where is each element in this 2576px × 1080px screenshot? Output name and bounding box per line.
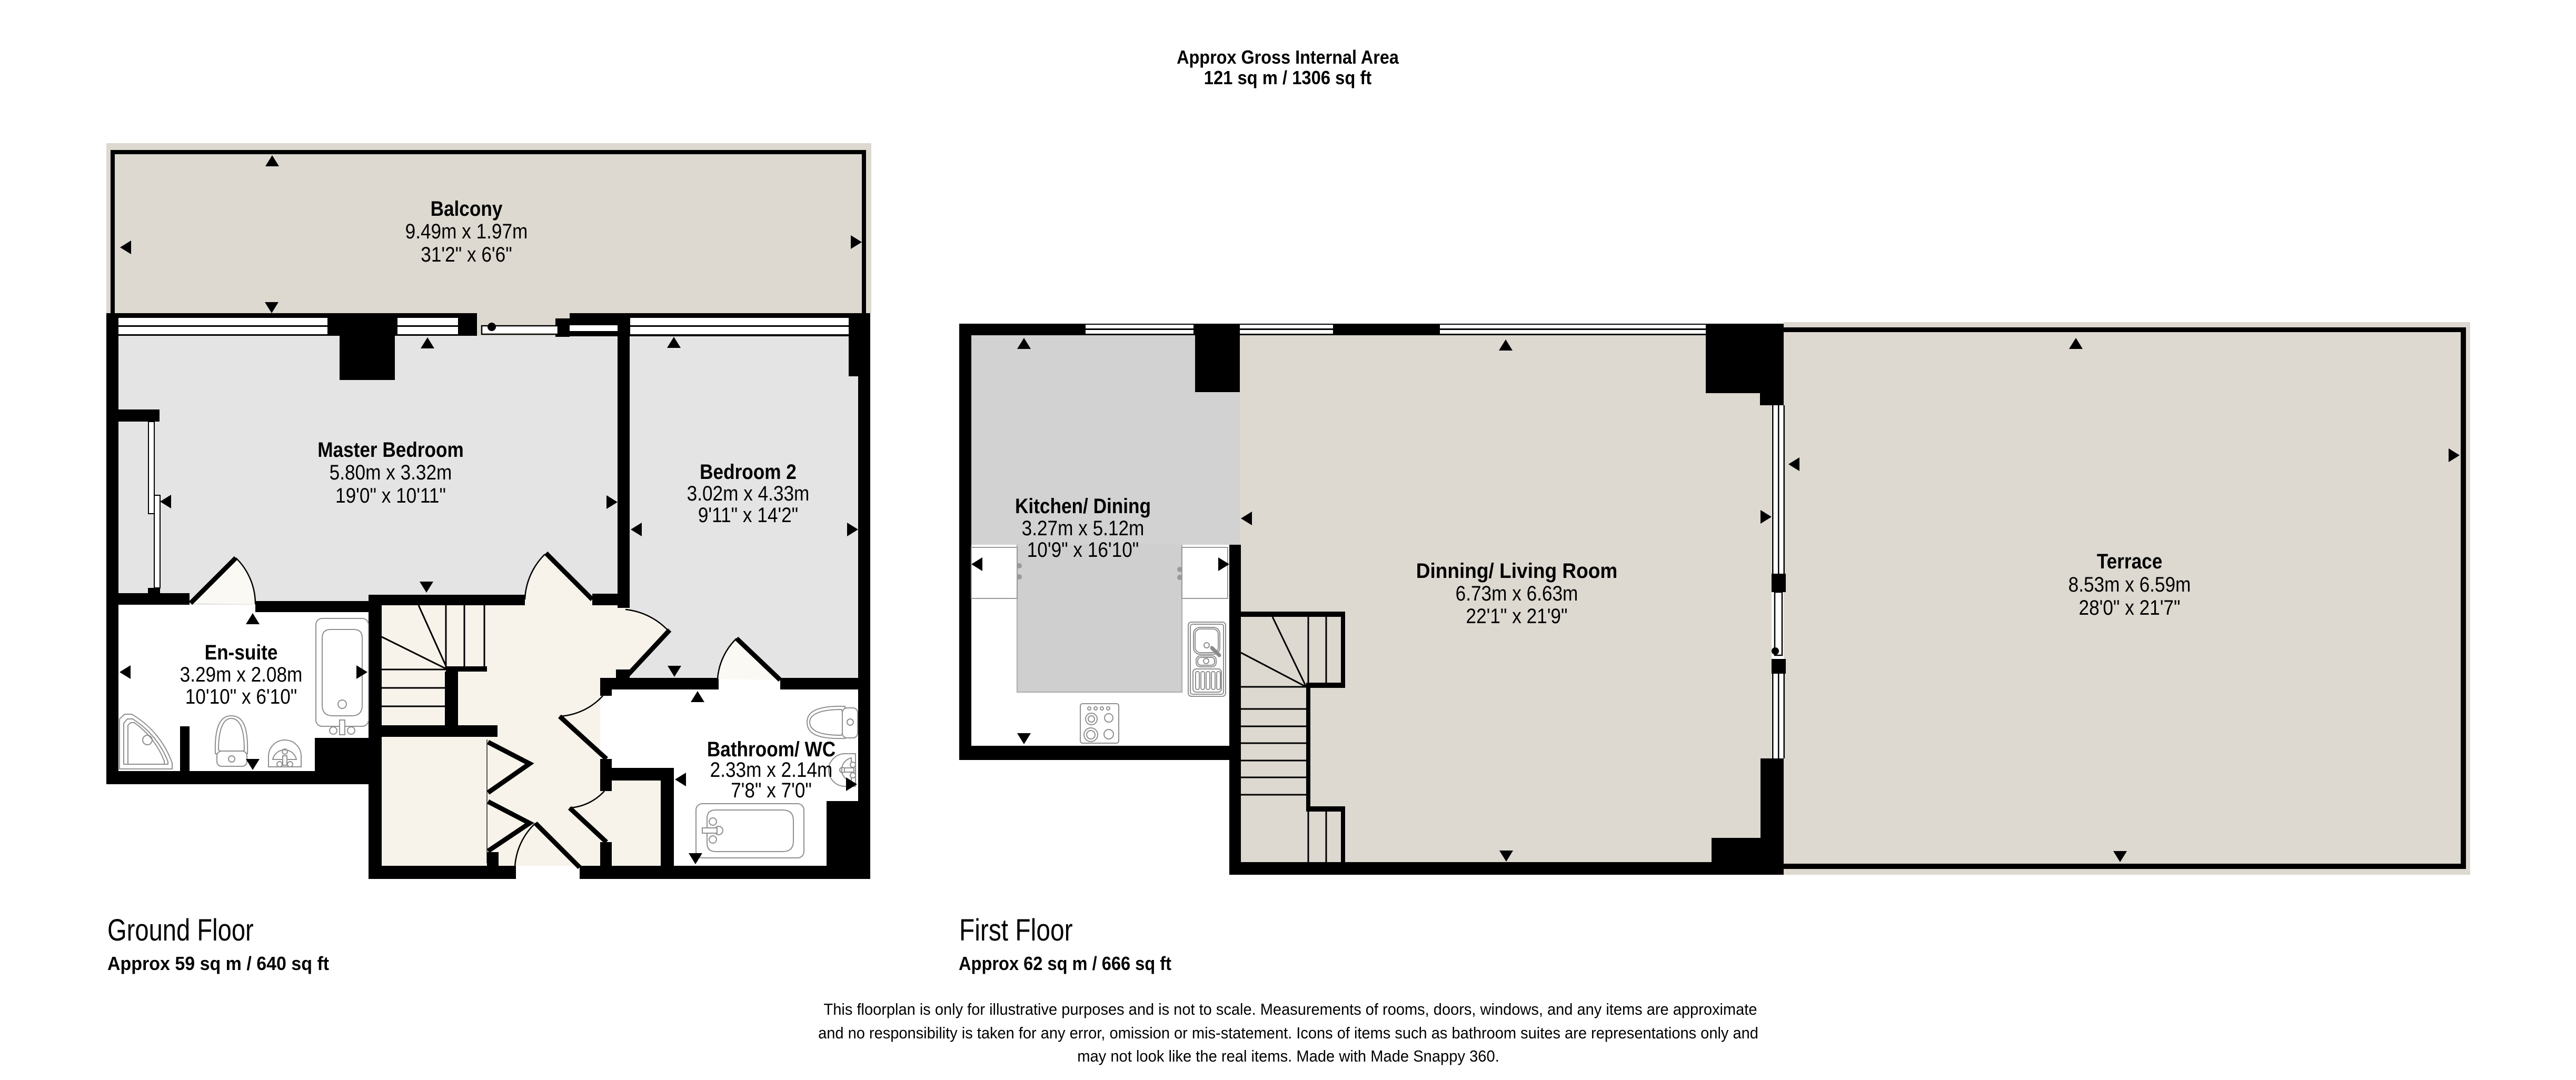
svg-text:Approx 62 sq m / 666 sq ft: Approx 62 sq m / 666 sq ft	[959, 954, 1171, 975]
svg-text:10'9" x 16'10": 10'9" x 16'10"	[1027, 538, 1139, 562]
svg-text:Dinning/ Living Room: Dinning/ Living Room	[1416, 559, 1618, 583]
svg-text:9'11" x 14'2": 9'11" x 14'2"	[698, 503, 798, 527]
svg-text:may not look like the real ite: may not look like the real items. Made w…	[1077, 1047, 1499, 1065]
svg-text:2.33m x 2.14m: 2.33m x 2.14m	[710, 758, 833, 782]
svg-text:3.29m x 2.08m: 3.29m x 2.08m	[180, 663, 303, 686]
svg-text:Approx Gross Internal Area: Approx Gross Internal Area	[1177, 47, 1399, 68]
svg-text:Approx 59 sq m / 640 sq ft: Approx 59 sq m / 640 sq ft	[107, 953, 329, 974]
svg-text:31'2" x 6'6": 31'2" x 6'6"	[421, 243, 512, 266]
svg-text:9.49m x 1.97m: 9.49m x 1.97m	[405, 219, 528, 243]
svg-text:Master Bedroom: Master Bedroom	[317, 438, 464, 462]
svg-text:7'8" x 7'0": 7'8" x 7'0"	[731, 778, 812, 802]
svg-text:6.73m x 6.63m: 6.73m x 6.63m	[1456, 582, 1578, 605]
svg-text:3.02m x 4.33m: 3.02m x 4.33m	[687, 482, 810, 505]
svg-text:Ground Floor: Ground Floor	[107, 913, 254, 947]
svg-text:28'0" x 21'7": 28'0" x 21'7"	[2079, 596, 2181, 619]
svg-text:Balcony: Balcony	[431, 197, 503, 221]
svg-text:This floorplan is only for ill: This floorplan is only for illustrative …	[824, 1001, 1757, 1018]
svg-text:8.53m x 6.59m: 8.53m x 6.59m	[2068, 573, 2191, 596]
svg-text:10'10" x 6'10": 10'10" x 6'10"	[185, 685, 297, 708]
svg-text:Bathroom/ WC: Bathroom/ WC	[707, 737, 836, 761]
svg-text:3.27m x 5.12m: 3.27m x 5.12m	[1022, 516, 1145, 540]
svg-text:22'1" x 21'9": 22'1" x 21'9"	[1466, 604, 1568, 628]
svg-text:19'0" x 10'11": 19'0" x 10'11"	[335, 484, 446, 507]
svg-text:First Floor: First Floor	[959, 914, 1073, 947]
svg-text:Kitchen/ Dining: Kitchen/ Dining	[1015, 494, 1151, 518]
svg-text:121 sq m / 1306 sq ft: 121 sq m / 1306 sq ft	[1204, 68, 1372, 89]
svg-text:5.80m x 3.32m: 5.80m x 3.32m	[330, 461, 452, 484]
svg-text:En-suite: En-suite	[205, 641, 278, 664]
svg-text:Terrace: Terrace	[2097, 549, 2163, 573]
svg-text:and no responsibility is taken: and no responsibility is taken for any e…	[818, 1024, 1758, 1042]
svg-text:Bedroom 2: Bedroom 2	[700, 460, 797, 484]
